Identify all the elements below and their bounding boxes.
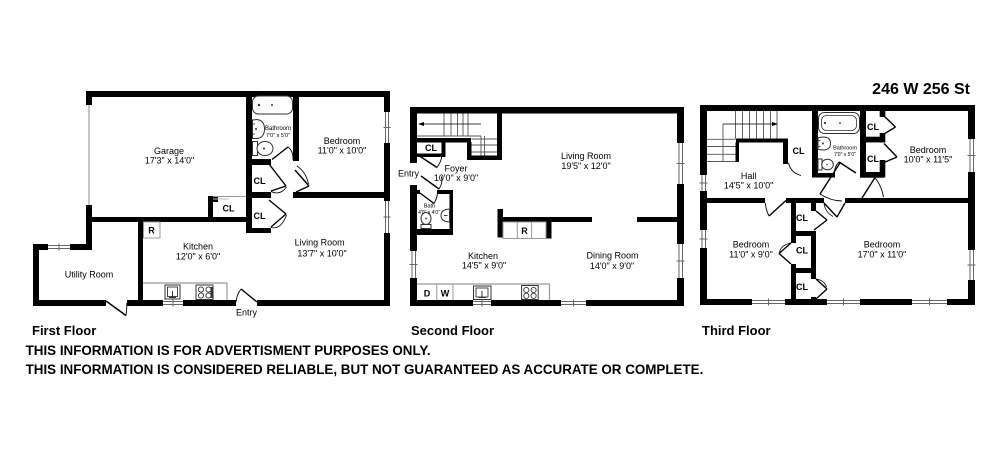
svg-text:10'0" x 11'5": 10'0" x 11'5"	[904, 155, 953, 165]
svg-text:11'0" x 10'0": 11'0" x 10'0"	[318, 146, 367, 156]
svg-text:CL: CL	[793, 146, 805, 156]
svg-text:R: R	[148, 226, 155, 236]
svg-text:Entry: Entry	[236, 308, 258, 318]
svg-text:17'3" x 14'0": 17'3" x 14'0"	[145, 156, 194, 166]
svg-text:Utility Room: Utility Room	[65, 270, 114, 280]
svg-text:Second Floor: Second Floor	[411, 323, 494, 338]
svg-text:Garage: Garage	[154, 146, 184, 156]
svg-text:Bedroom: Bedroom	[733, 240, 770, 250]
svg-text:CL: CL	[223, 204, 235, 214]
svg-text:Bathroom: Bathroom	[265, 126, 291, 132]
svg-text:CL: CL	[796, 246, 808, 256]
svg-text:7'0" x 5'0": 7'0" x 5'0"	[834, 152, 856, 158]
svg-text:R: R	[521, 226, 528, 236]
svg-text:Bathroom: Bathroom	[833, 146, 857, 152]
svg-text:246 W 256 St: 246 W 256 St	[872, 81, 971, 98]
svg-text:13'7" x 10'0": 13'7" x 10'0"	[297, 249, 346, 259]
svg-text:W: W	[441, 289, 450, 299]
svg-text:CL: CL	[254, 176, 266, 186]
svg-text:CL: CL	[867, 154, 879, 164]
svg-text:Entry: Entry	[398, 169, 420, 179]
svg-text:Bedroom: Bedroom	[910, 145, 947, 155]
svg-text:Living Room: Living Room	[561, 151, 611, 161]
svg-text:4'0" x 4'0": 4'0" x 4'0"	[418, 210, 440, 216]
svg-text:17'0" x 11'0": 17'0" x 11'0"	[858, 250, 907, 260]
svg-text:14'5" x 9'0": 14'5" x 9'0"	[462, 261, 506, 271]
svg-text:10'0" x 9'0": 10'0" x 9'0"	[434, 173, 478, 183]
svg-text:Kitchen: Kitchen	[468, 251, 498, 261]
svg-text:Kitchen: Kitchen	[183, 242, 213, 252]
svg-text:14'5" x 10'0": 14'5" x 10'0"	[724, 181, 773, 191]
svg-text:Bedroom: Bedroom	[864, 240, 901, 250]
svg-text:D: D	[424, 289, 431, 299]
svg-text:CL: CL	[796, 282, 808, 292]
svg-text:14'0" x 9'0": 14'0" x 9'0"	[590, 261, 634, 271]
svg-text:Foyer: Foyer	[444, 164, 467, 174]
svg-text:12'0" x 6'0": 12'0" x 6'0"	[176, 252, 220, 262]
svg-text:Bath: Bath	[424, 204, 435, 210]
svg-text:THIS INFORMATION IS FOR ADVERT: THIS INFORMATION IS FOR ADVERTISMENT PUR…	[26, 343, 431, 358]
svg-text:Dining Room: Dining Room	[586, 251, 638, 261]
svg-text:Third Floor: Third Floor	[702, 323, 771, 338]
svg-text:Hall: Hall	[741, 171, 757, 181]
svg-text:19'5" x 12'0": 19'5" x 12'0"	[561, 161, 610, 171]
svg-text:THIS INFORMATION IS CONSIDERED: THIS INFORMATION IS CONSIDERED RELIABLE,…	[26, 362, 704, 377]
svg-text:CL: CL	[867, 122, 879, 132]
svg-text:7'0" x 5'0": 7'0" x 5'0"	[266, 133, 290, 139]
svg-text:Living Room: Living Room	[295, 238, 345, 248]
svg-text:CL: CL	[425, 143, 437, 153]
svg-text:First Floor: First Floor	[32, 323, 96, 338]
svg-text:Bedroom: Bedroom	[324, 136, 361, 146]
svg-text:CL: CL	[796, 213, 808, 223]
svg-text:CL: CL	[254, 211, 266, 221]
svg-text:11'0" x 9'0": 11'0" x 9'0"	[729, 250, 773, 260]
